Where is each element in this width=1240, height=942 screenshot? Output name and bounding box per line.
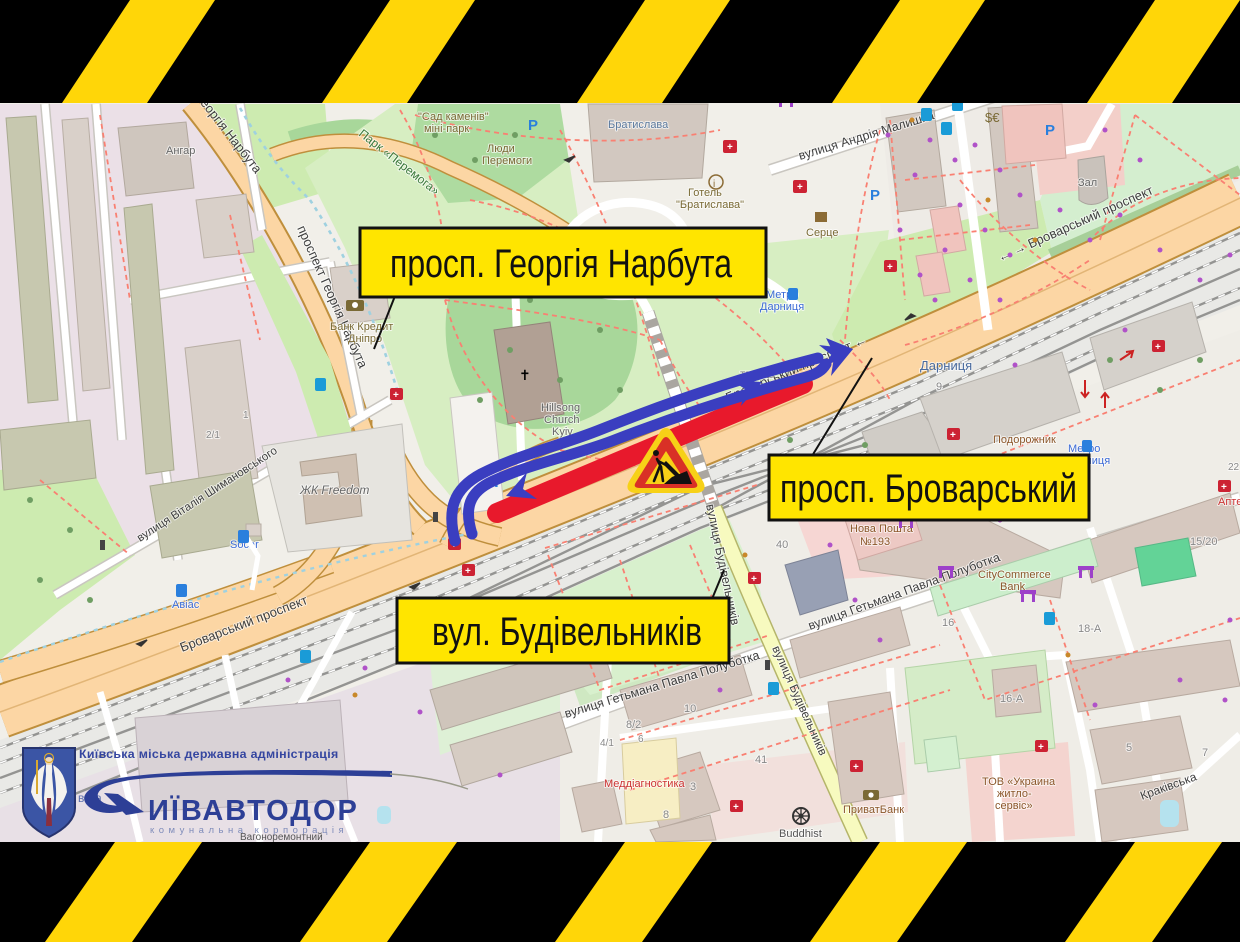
svg-text:16-А: 16-А xyxy=(1000,693,1024,705)
svg-text:+: + xyxy=(1038,742,1044,753)
svg-text:"Братислава": "Братислава" xyxy=(676,199,744,211)
svg-text:Меддіагностика: Меддіагностика xyxy=(604,778,686,790)
svg-text:вул. Будівельників: вул. Будівельників xyxy=(432,610,702,654)
svg-text:житло-: житло- xyxy=(997,788,1032,800)
svg-text:3: 3 xyxy=(690,781,696,793)
svg-text:Дарниця: Дарниця xyxy=(760,301,804,313)
svg-text:P: P xyxy=(1045,122,1055,139)
svg-text:1: 1 xyxy=(243,410,249,421)
svg-text:4/1: 4/1 xyxy=(600,738,614,749)
svg-text:16: 16 xyxy=(942,617,954,629)
svg-text:Зал: Зал xyxy=(1078,177,1097,189)
svg-text:+: + xyxy=(751,574,757,585)
svg-text:"Сад каменів": "Сад каменів" xyxy=(418,111,489,123)
svg-text:P: P xyxy=(870,187,880,204)
svg-text:Ангар: Ангар xyxy=(166,145,195,157)
svg-text:№193: №193 xyxy=(860,536,890,548)
svg-text:✝: ✝ xyxy=(519,367,531,383)
svg-text:Люди: Люди xyxy=(487,143,515,155)
svg-text:Church: Church xyxy=(544,414,579,426)
svg-text:+: + xyxy=(853,762,859,773)
svg-text:Дарниця: Дарниця xyxy=(920,358,972,373)
svg-text:Авіас: Авіас xyxy=(172,599,200,611)
svg-text:8: 8 xyxy=(663,809,669,821)
svg-text:+: + xyxy=(727,142,733,153)
svg-text:6: 6 xyxy=(638,734,644,745)
svg-text:+: + xyxy=(393,390,399,401)
svg-text:Нова Пошта: Нова Пошта xyxy=(850,523,914,535)
svg-text:41: 41 xyxy=(755,754,767,766)
svg-text:Апте: Апте xyxy=(1218,496,1240,508)
svg-text:9: 9 xyxy=(936,381,942,393)
svg-text:ПриватБанк: ПриватБанк xyxy=(843,804,904,816)
svg-text:Київська міська державна ад: Київська міська державна адміністрація xyxy=(79,747,339,761)
svg-text:15/20: 15/20 xyxy=(1190,536,1218,548)
svg-text:просп. Броварський: просп. Броварський xyxy=(780,467,1077,511)
svg-text:i: i xyxy=(713,179,715,190)
svg-text:ЖК Freedom: ЖК Freedom xyxy=(299,483,369,497)
svg-text:CityCommerce: CityCommerce xyxy=(978,569,1051,581)
svg-text:ТОВ «Украина: ТОВ «Украина xyxy=(982,776,1056,788)
svg-text:18-А: 18-А xyxy=(1078,623,1102,635)
svg-text:Братислава: Братислава xyxy=(608,119,669,131)
svg-text:7: 7 xyxy=(1202,747,1208,759)
svg-text:Buddhist: Buddhist xyxy=(779,828,822,840)
svg-text:ИЇВАВТОДОР: ИЇВАВТОДОР xyxy=(148,794,359,827)
svg-text:Hillsong: Hillsong xyxy=(541,402,580,414)
svg-text:Вагоноремонтний: Вагоноремонтний xyxy=(240,832,323,843)
svg-text:10: 10 xyxy=(684,703,696,715)
svg-text:8/2: 8/2 xyxy=(626,719,641,731)
svg-text:+: + xyxy=(797,182,803,193)
svg-text:40: 40 xyxy=(776,539,788,551)
svg-text:+: + xyxy=(950,430,956,441)
svg-text:сервіс»: сервіс» xyxy=(995,800,1033,812)
svg-text:+: + xyxy=(465,566,471,577)
svg-text:+: + xyxy=(1155,342,1161,353)
svg-text:22: 22 xyxy=(1228,462,1240,473)
svg-text:Перемоги: Перемоги xyxy=(482,155,532,167)
svg-text:просп. Георгія Нарбута: просп. Георгія Нарбута xyxy=(390,242,733,286)
svg-text:5: 5 xyxy=(1126,742,1132,754)
svg-text:+: + xyxy=(1221,482,1227,493)
svg-text:2/1: 2/1 xyxy=(206,430,220,441)
svg-text:+: + xyxy=(887,262,893,273)
svg-text:Подорожник: Подорожник xyxy=(993,434,1056,446)
svg-text:P: P xyxy=(528,117,538,134)
svg-text:міні-парк: міні-парк xyxy=(424,123,469,135)
svg-text:$€: $€ xyxy=(985,110,1000,125)
svg-text:+: + xyxy=(733,802,739,813)
svg-text:Серце: Серце xyxy=(806,227,838,239)
